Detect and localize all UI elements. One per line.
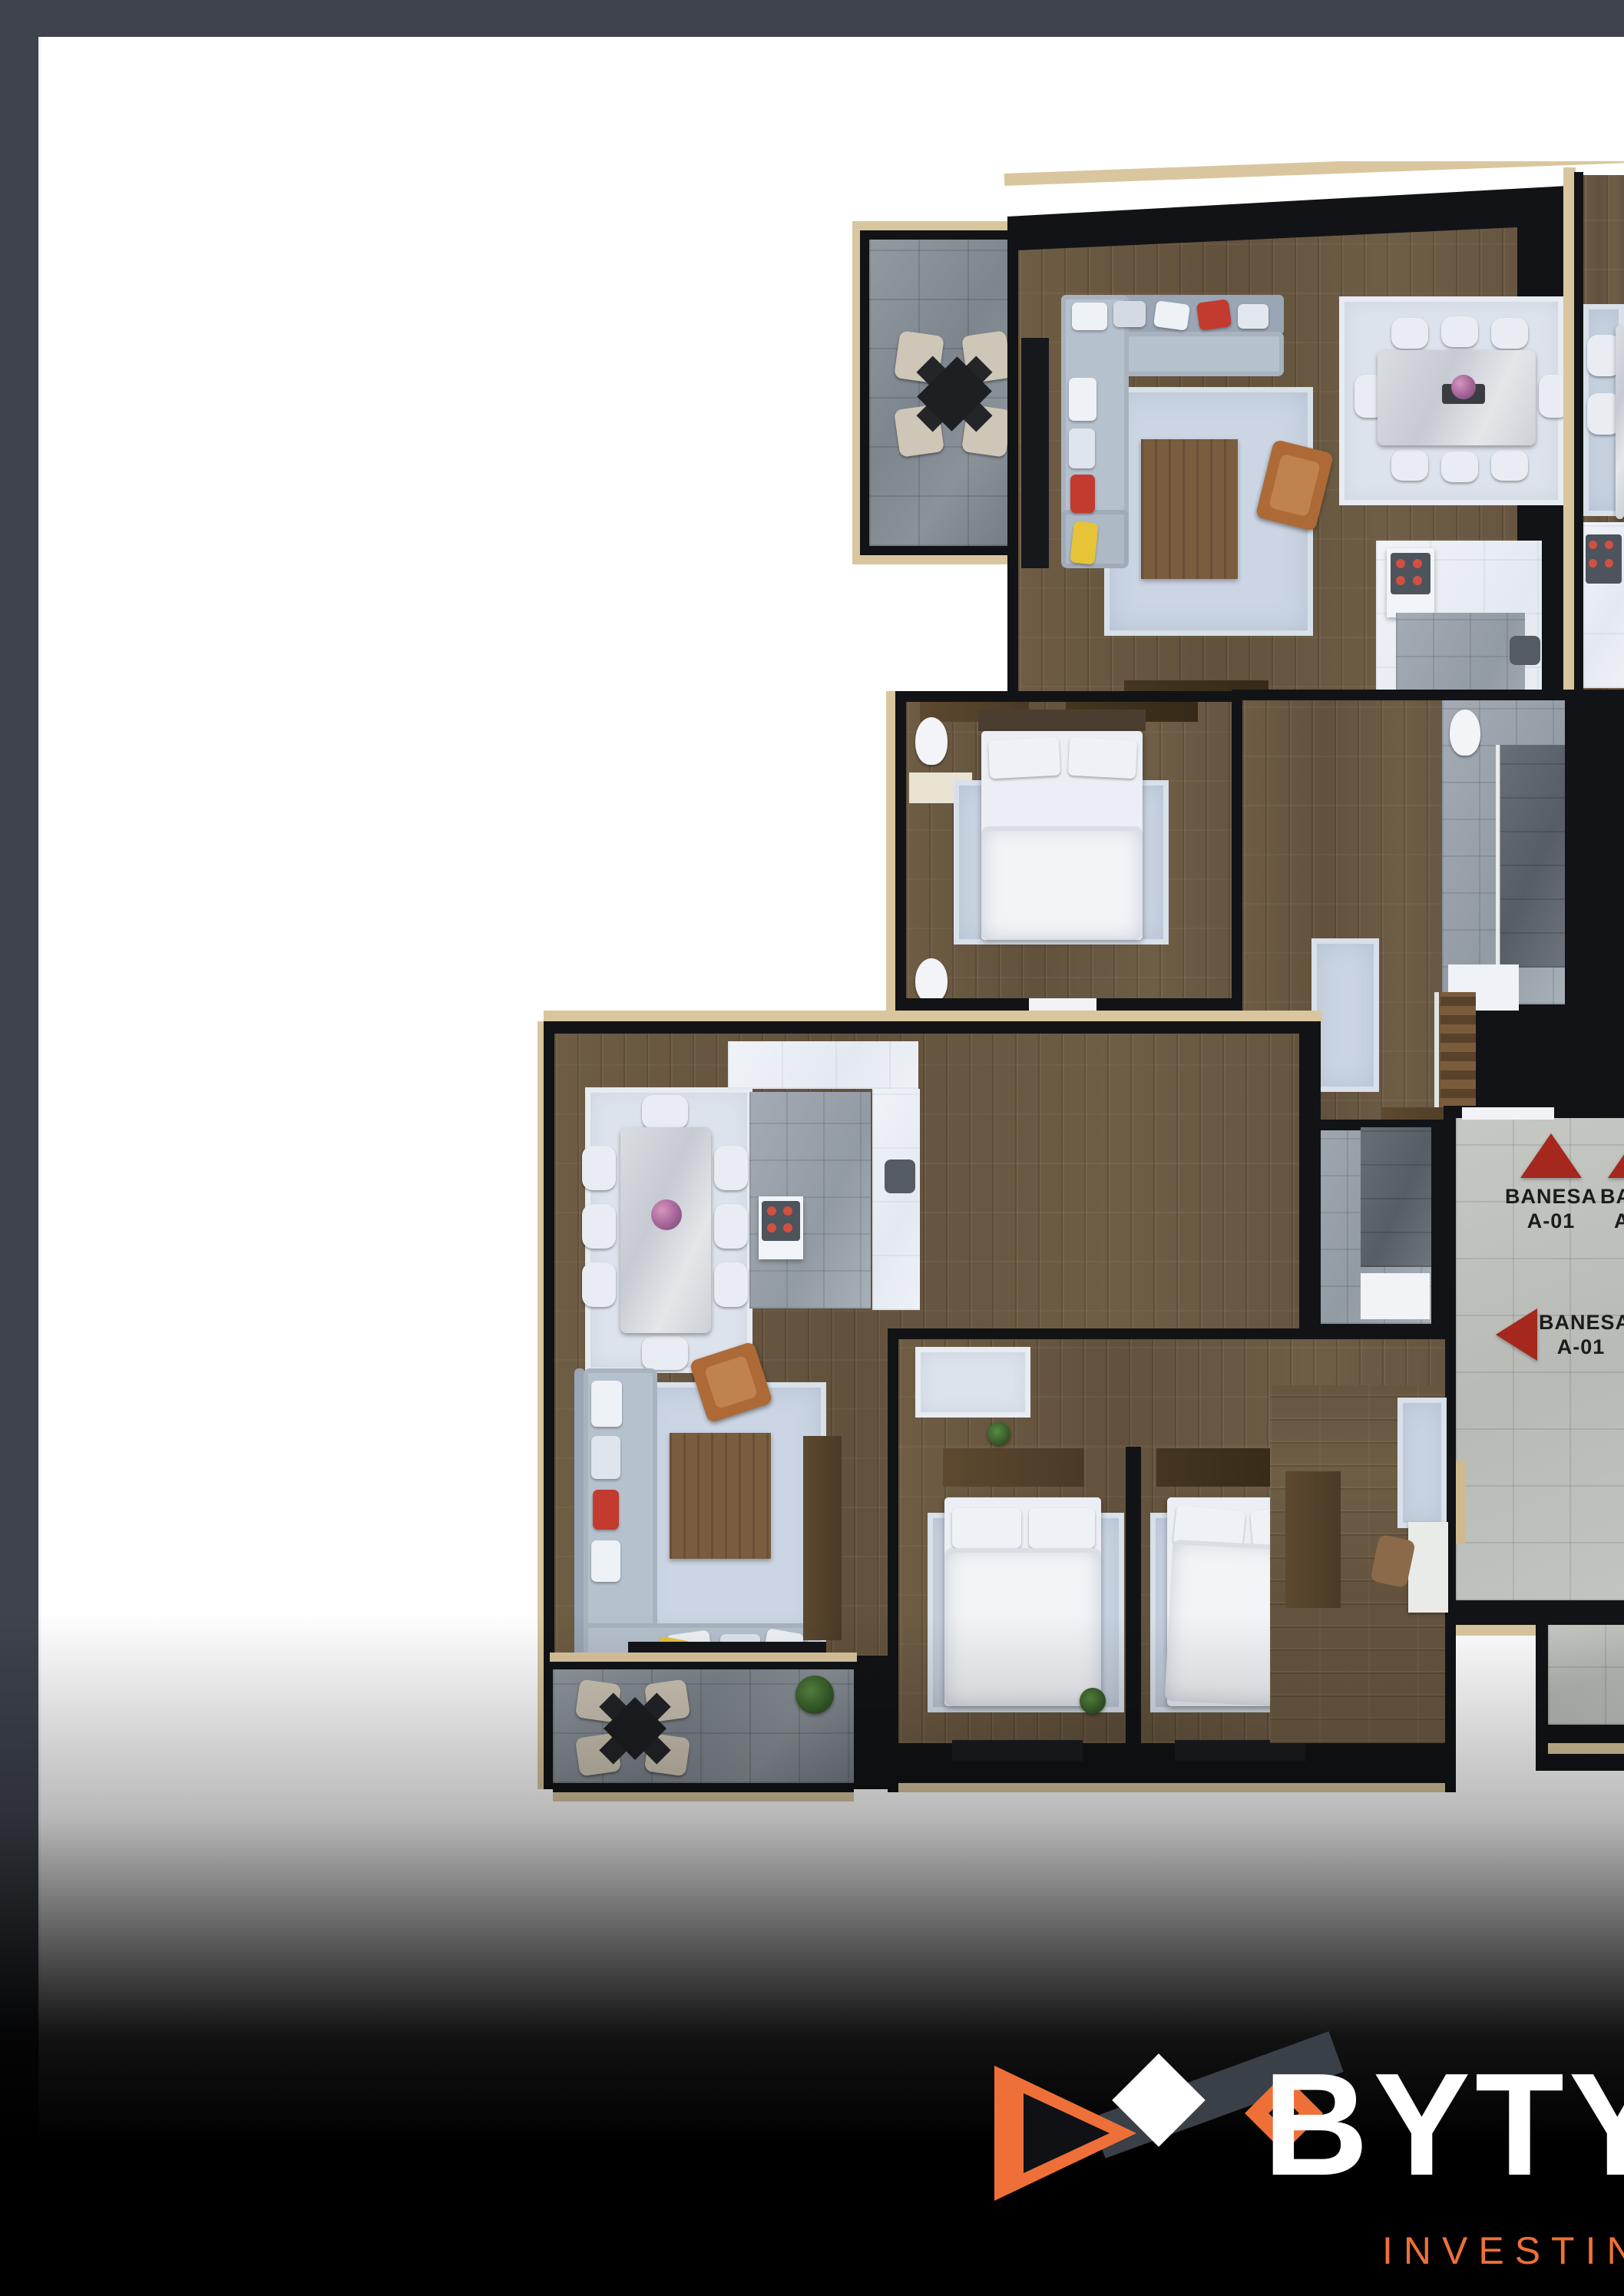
shower-glass	[1496, 745, 1500, 968]
burner	[1413, 559, 1422, 568]
dining-chair	[1391, 318, 1428, 349]
entrance-arrow-up-icon	[1608, 1133, 1624, 1178]
dining-chair	[714, 1262, 748, 1307]
burner	[1589, 541, 1597, 549]
neighbour-table-edge	[1616, 326, 1624, 519]
toilet	[915, 958, 948, 1003]
door-threshold	[1462, 1107, 1554, 1120]
label-line1: BAN	[1600, 1184, 1624, 1209]
pillow-red	[1196, 299, 1232, 330]
kitchen-sink	[885, 1160, 915, 1193]
pillow	[1238, 304, 1268, 329]
wardrobe	[943, 1448, 1084, 1487]
dining-chair	[714, 1204, 748, 1249]
floor-plan: BANESA A-01 BAN A- BANESA A-01	[537, 161, 1624, 1805]
top-edge-trim	[1004, 161, 1624, 186]
a01-kitchen-counter	[728, 1041, 918, 1089]
bed-pillow	[1068, 737, 1137, 779]
burner	[1605, 541, 1613, 549]
label-line2: A-01	[1490, 1209, 1612, 1233]
brand-tagline: INVESTING	[1382, 2228, 1624, 2273]
pillow-red	[593, 1490, 619, 1530]
label-line1: BANESA	[1539, 1310, 1623, 1335]
kitchen-sink	[1510, 636, 1540, 665]
brand-logo: BYTYQI INVESTING	[983, 2027, 1624, 2296]
balcony-dining-set	[897, 329, 1012, 459]
pillow	[591, 1540, 620, 1582]
dining-chair	[714, 1146, 748, 1190]
burner	[1413, 576, 1422, 585]
coffee-table-rug	[1141, 439, 1238, 579]
toilet	[915, 717, 948, 765]
a01-tv-unit	[803, 1436, 842, 1640]
dining-chair	[1491, 318, 1528, 349]
stair-rail	[1434, 992, 1439, 1126]
a01-coffee-rug	[670, 1433, 771, 1559]
pillow	[1072, 303, 1107, 330]
dining-chair	[1391, 450, 1428, 481]
flower-vase	[1451, 375, 1476, 399]
a01-kitchen-counter	[872, 1089, 920, 1310]
burner	[1589, 559, 1597, 567]
hall-rug	[915, 1347, 1030, 1418]
burner	[1605, 559, 1613, 567]
burner	[783, 1206, 792, 1216]
pillow-red	[1070, 475, 1095, 513]
plant	[987, 1422, 1010, 1445]
pillow	[591, 1381, 622, 1427]
entrance-arrow-left-icon	[1496, 1308, 1537, 1361]
a01-dining-table	[620, 1127, 711, 1333]
pillow-yellow	[1070, 521, 1098, 564]
dining-chair	[1491, 450, 1528, 481]
frame-top-bar	[0, 0, 1624, 37]
brochure-page: { "frame": { "color": "#3E434C" }, "floo…	[0, 0, 1624, 2296]
label-line2: A-01	[1539, 1335, 1623, 1359]
label-banesa-a01-left: BANESA A-01	[1496, 1296, 1623, 1381]
label-text: BANESA A-01	[1490, 1184, 1612, 1234]
burner	[1396, 576, 1405, 585]
label-line2: A-	[1600, 1209, 1624, 1233]
dining-chair	[642, 1095, 688, 1129]
burner	[767, 1223, 776, 1232]
marble-shower	[1361, 1127, 1431, 1267]
label-text: BAN A-	[1600, 1184, 1624, 1234]
logo-play-inner	[1024, 2093, 1110, 2173]
dining-chair	[582, 1262, 616, 1307]
pillow	[591, 1436, 620, 1479]
door-leaf	[1456, 1461, 1465, 1543]
toilet	[1450, 710, 1480, 756]
dining-chair	[1441, 452, 1478, 482]
bed-pillow	[988, 737, 1060, 779]
wardrobe-tall	[1285, 1471, 1341, 1608]
br-bed	[1397, 1398, 1447, 1528]
entrance-arrow-up-icon	[1520, 1133, 1582, 1178]
bed-duvet	[981, 826, 1143, 940]
cooktop	[1391, 553, 1431, 594]
pillow	[1113, 301, 1146, 327]
bed-pillow	[952, 1508, 1021, 1548]
dining-chair	[582, 1204, 616, 1249]
pillow	[1153, 300, 1190, 331]
bed-pillow	[1029, 1508, 1095, 1548]
shower-tray	[1361, 1273, 1430, 1319]
closet-white	[1408, 1522, 1448, 1613]
pillow	[1069, 428, 1095, 468]
burner	[767, 1206, 776, 1216]
shower	[1500, 745, 1565, 968]
cooktop	[762, 1201, 800, 1241]
dining-chair	[582, 1146, 616, 1190]
label-line1: BANESA	[1490, 1184, 1612, 1209]
dining-chair	[642, 1336, 688, 1370]
bed-headboard	[978, 710, 1146, 731]
burner	[783, 1223, 792, 1232]
dining-chair	[1441, 316, 1478, 347]
label-banesa-partial: BAN A-	[1599, 1133, 1624, 1236]
flower-vase	[651, 1199, 682, 1230]
media-wall	[1021, 338, 1049, 568]
label-text: BANESA A-01	[1539, 1310, 1623, 1360]
pillow	[1069, 378, 1096, 421]
brand-name: BYTYQI	[1263, 2041, 1624, 2208]
burner	[1396, 559, 1405, 568]
label-banesa-a01-up: BANESA A-01	[1490, 1133, 1612, 1236]
